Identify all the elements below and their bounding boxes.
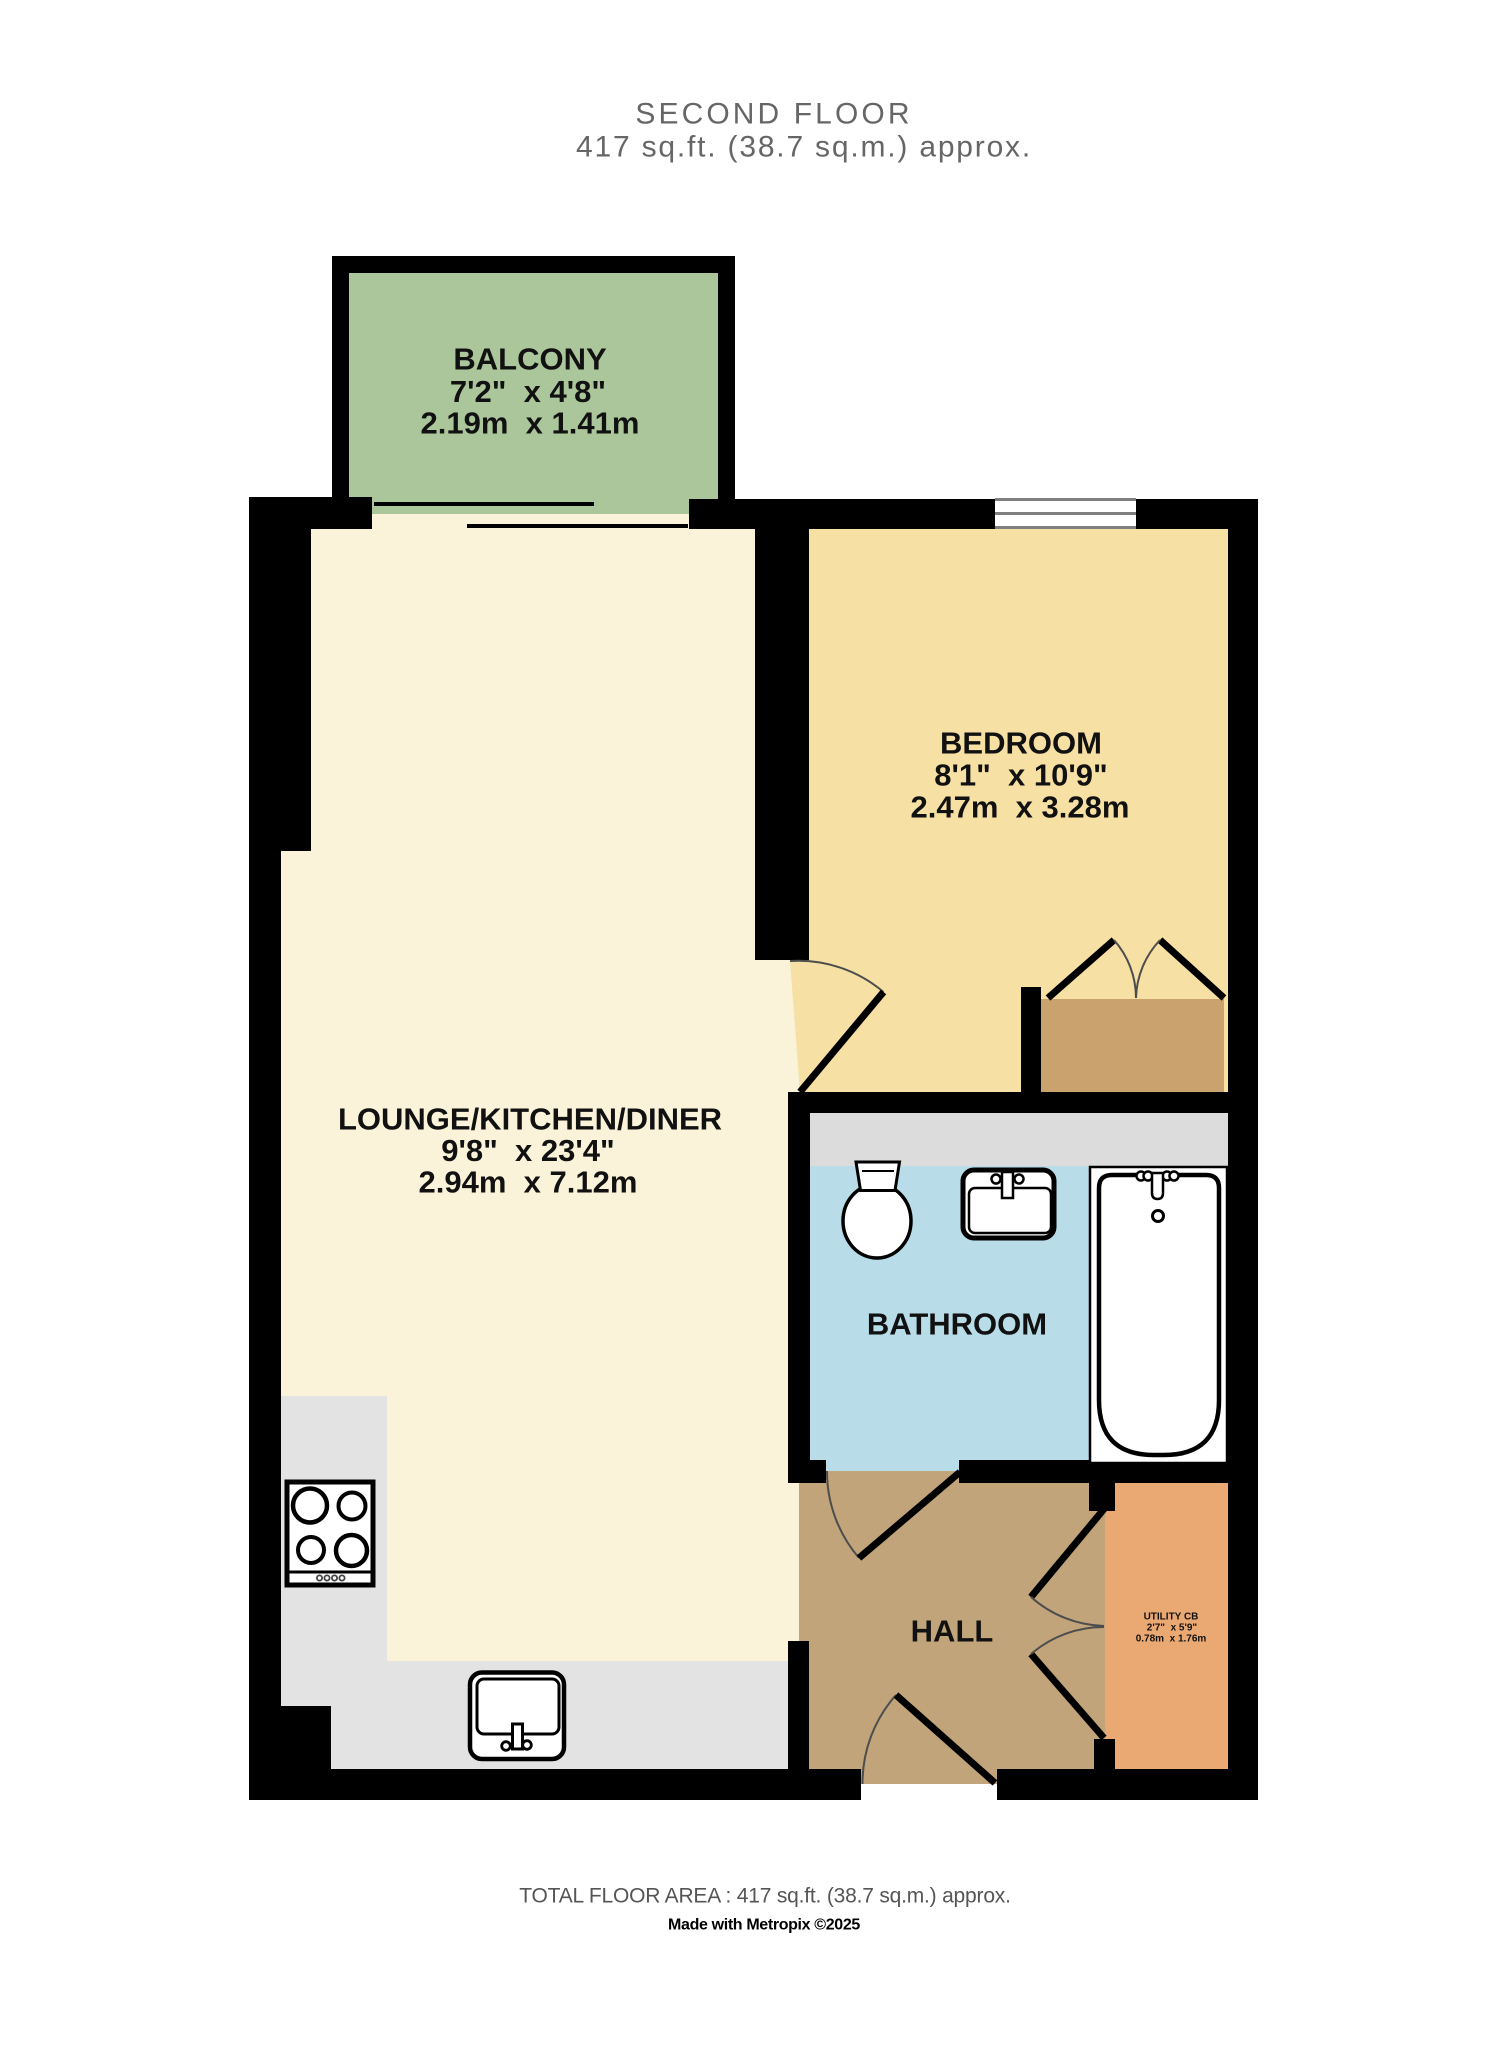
svg-text:0.78m x 1.76m: 0.78m x 1.76m [1136, 1634, 1207, 1645]
svg-text:UTILITY CB: UTILITY CB [1144, 1612, 1199, 1623]
svg-text:TOTAL FLOOR AREA : 417 sq.ft.: TOTAL FLOOR AREA : 417 sq.ft. (38.7 sq.m… [519, 1885, 1010, 1908]
svg-text:LOUNGE/KITCHEN/DINER: LOUNGE/KITCHEN/DINER [338, 1102, 722, 1137]
svg-text:8'1" x 10'9": 8'1" x 10'9" [934, 758, 1107, 793]
svg-text:7'2" x 4'8": 7'2" x 4'8" [450, 374, 606, 409]
svg-text:BEDROOM: BEDROOM [940, 726, 1102, 761]
svg-text:2.47m x 3.28m: 2.47m x 3.28m [911, 790, 1130, 825]
svg-text:2.19m x 1.41m: 2.19m x 1.41m [421, 406, 640, 441]
svg-text:HALL: HALL [911, 1614, 994, 1649]
svg-text:BATHROOM: BATHROOM [867, 1307, 1047, 1342]
svg-text:417 sq.ft. (38.7 sq.m.) approx: 417 sq.ft. (38.7 sq.m.) approx. [576, 131, 1032, 164]
svg-text:2.94m x 7.12m: 2.94m x 7.12m [419, 1165, 638, 1200]
svg-text:9'8" x 23'4": 9'8" x 23'4" [441, 1133, 614, 1168]
svg-text:BALCONY: BALCONY [453, 342, 607, 377]
svg-text:2'7" x 5'9": 2'7" x 5'9" [1147, 1623, 1198, 1634]
svg-text:SECOND FLOOR: SECOND FLOOR [635, 98, 912, 131]
svg-text:Made with Metropix ©2025: Made with Metropix ©2025 [668, 1917, 860, 1934]
